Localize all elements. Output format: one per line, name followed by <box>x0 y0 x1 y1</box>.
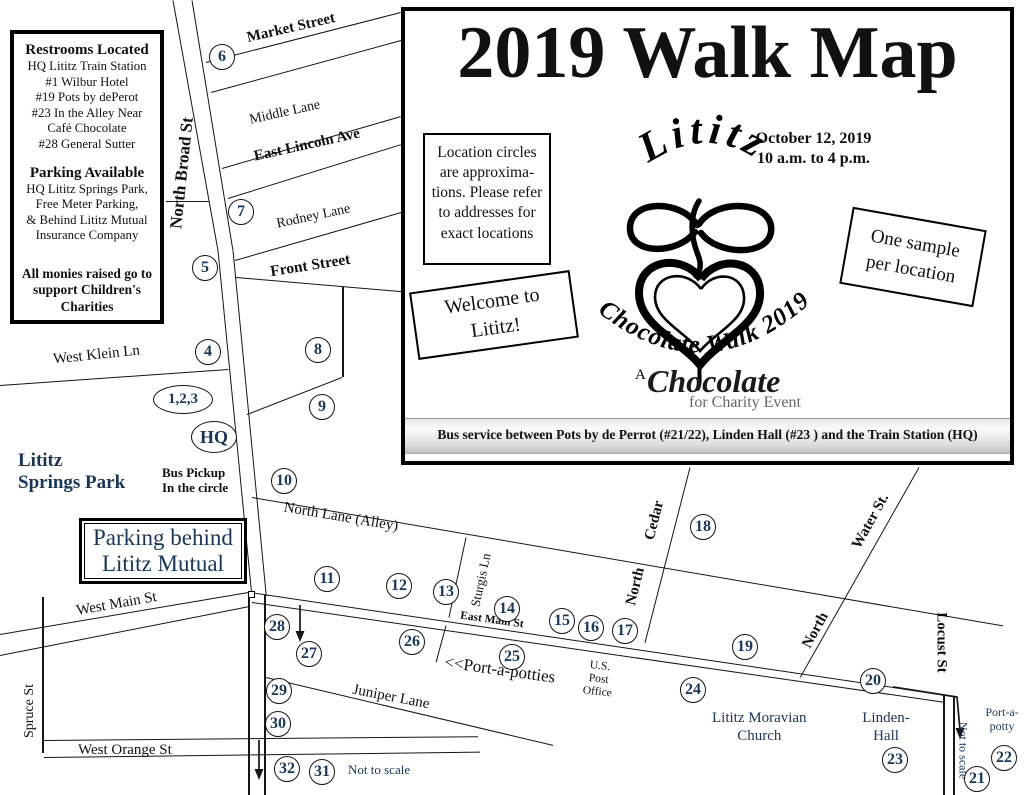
one-sample-box: One sample per location <box>839 207 986 307</box>
street-label-spruce-st: Spruce St <box>22 676 38 746</box>
location-circle-32: 32 <box>274 756 300 782</box>
title-panel: 2019 Walk Map Location circles are appro… <box>401 7 1014 465</box>
location-circle-30: 30 <box>265 711 291 737</box>
port-a-potty-label: Port-a- potty <box>980 705 1024 734</box>
location-circle-6: 6 <box>209 44 235 70</box>
location-circle-18: 18 <box>690 514 716 540</box>
location-circle-16: 16 <box>578 615 604 641</box>
parking-behind-lititz-mutual-box: Parking behind Lititz Mutual <box>79 518 247 584</box>
location-circle-19: 19 <box>732 634 758 660</box>
street-label-locust-st: Locust St <box>933 603 950 683</box>
svg-text:Chocolate Walk 2019: Chocolate Walk 2019 <box>594 286 816 358</box>
location-circle-12: 12 <box>386 573 412 599</box>
page-title: 2019 Walk Map <box>405 15 1010 93</box>
location-circle-17: 17 <box>612 618 638 644</box>
logo-city-text: Lititz <box>630 107 777 172</box>
parking-list: HQ Lititz Springs Park, Free Meter Parki… <box>14 182 160 244</box>
location-circle-14: 14 <box>494 596 520 622</box>
street-label-west-orange-st: West Orange St <box>78 742 172 759</box>
location-circle-31: 31 <box>309 759 335 785</box>
charity-note: All monies raised go to support Children… <box>14 266 160 315</box>
welcome-box: Welcome to Lititz! <box>409 270 579 360</box>
linden-hall-label: Linden- Hall <box>856 709 916 745</box>
legend-info-box: Restrooms Located HQ Lititz Train Statio… <box>10 30 164 324</box>
restrooms-list: HQ Lititz Train Station #1 Wilbur Hotel … <box>14 59 160 153</box>
location-circle-13: 13 <box>433 579 459 605</box>
restrooms-title: Restrooms Located <box>14 42 160 59</box>
location-circle-10: 10 <box>271 468 297 494</box>
location-circle-26: 26 <box>399 629 425 655</box>
parking-title: Parking Available <box>14 165 160 182</box>
lititz-moravian-church-label: Lititz Moravian Church <box>712 709 807 745</box>
location-circle-25: 25 <box>499 644 525 670</box>
location-circle-22: 22 <box>991 745 1017 771</box>
location-circle-7: 7 <box>228 199 254 225</box>
location-circle-15: 15 <box>549 608 575 634</box>
location-circle-5: 5 <box>192 255 218 281</box>
location-circle-28: 28 <box>264 614 290 640</box>
location-note-box: Location circles are approxima- tions. P… <box>423 133 551 265</box>
location-circle-23: 23 <box>882 747 908 773</box>
parking-behind-label: Parking behind Lititz Mutual <box>84 523 242 579</box>
location-circle-hq: HQ <box>191 421 237 453</box>
location-circle-4: 4 <box>195 339 221 365</box>
bus-service-note: Bus service between Pots by de Perrot (#… <box>405 418 1010 454</box>
logo-event-arc-text: Chocolate Walk 2019 <box>594 286 816 358</box>
location-circle-8: 8 <box>305 337 331 363</box>
location-circle-1-2-3: 1,2,3 <box>153 385 213 414</box>
not-to-scale-label: Not to scale <box>348 762 410 778</box>
location-circle-24: 24 <box>680 677 706 703</box>
chocolate-walk-logo: Lititz Chocolate Walk 2019 A Chocolate f… <box>585 103 825 411</box>
location-circle-29: 29 <box>266 678 292 704</box>
walk-map: Restrooms Located HQ Lititz Train Statio… <box>0 0 1024 795</box>
location-circle-21: 21 <box>964 766 990 792</box>
us-post-office-label: U.S. Post Office <box>582 659 615 701</box>
intersection-marker <box>248 591 255 598</box>
lititz-springs-park-label: Lititz Springs Park <box>18 450 125 495</box>
location-circle-20: 20 <box>860 668 886 694</box>
svg-text:Lititz: Lititz <box>630 107 777 172</box>
location-circle-9: 9 <box>309 394 335 420</box>
location-circle-11: 11 <box>314 566 340 592</box>
logo-a-text: A <box>635 367 646 383</box>
logo-tagline-text: for Charity Event <box>689 394 802 411</box>
location-circle-27: 27 <box>296 641 322 667</box>
bus-pickup-label: Bus Pickup In the circle <box>162 466 228 496</box>
